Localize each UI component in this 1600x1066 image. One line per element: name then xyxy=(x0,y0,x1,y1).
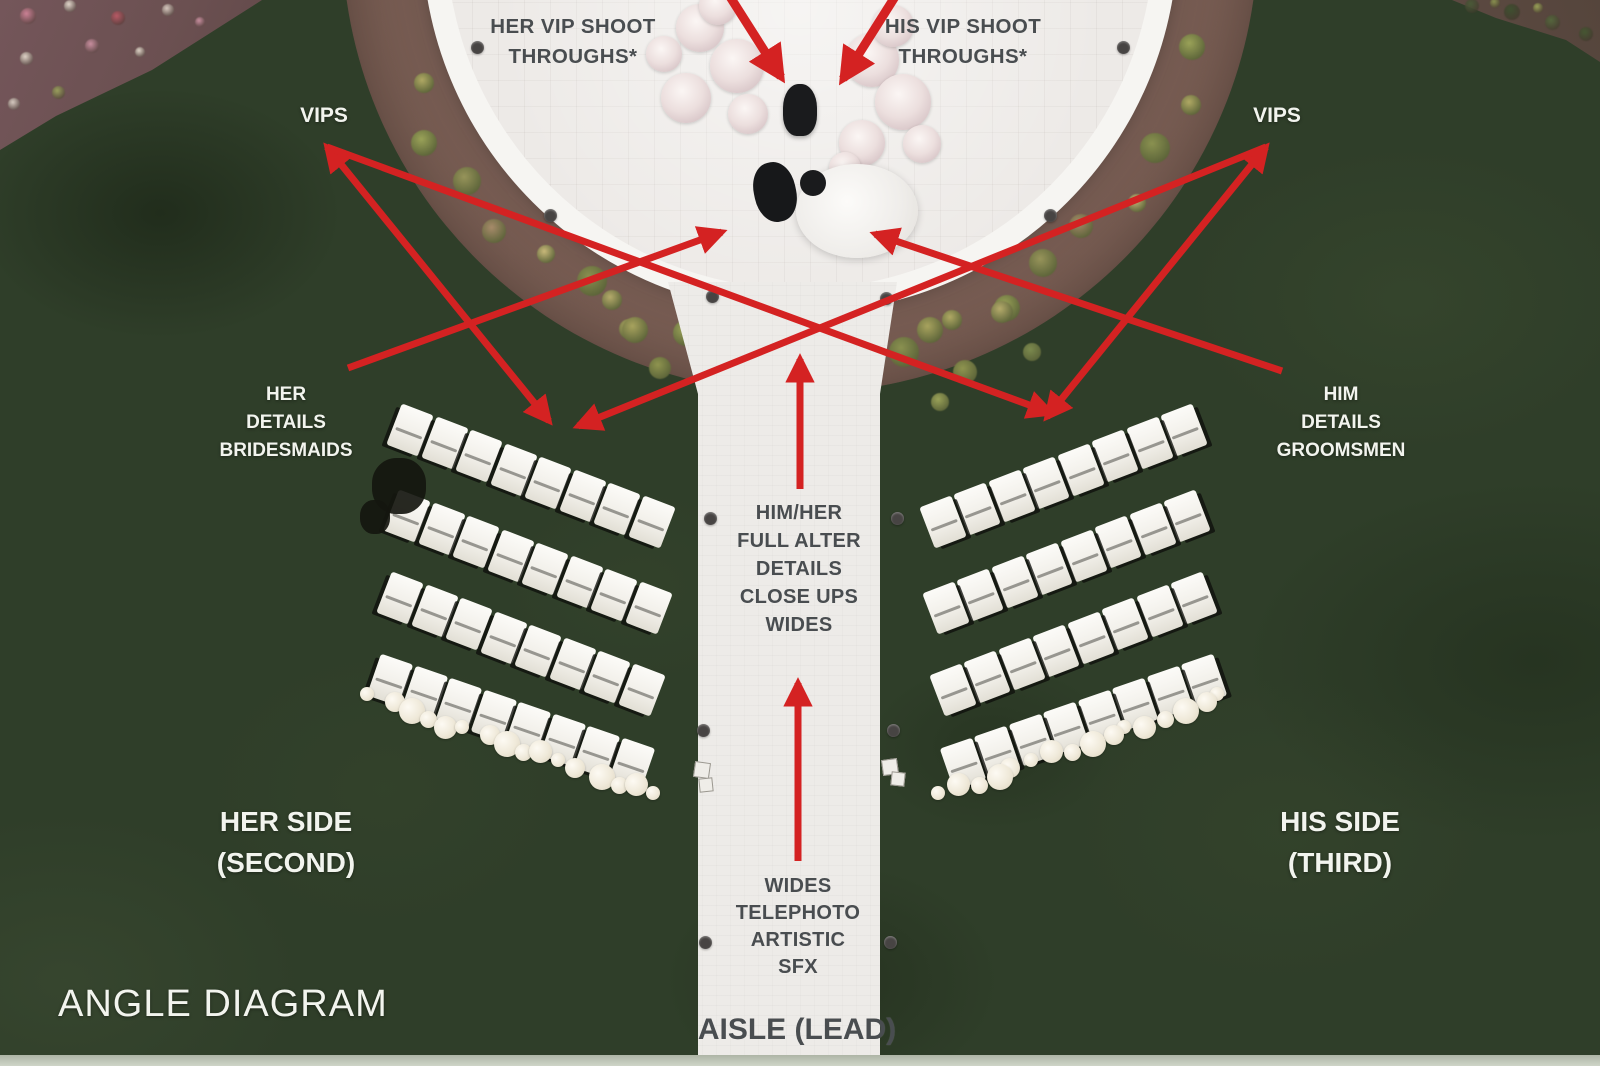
speaker-box xyxy=(890,771,905,786)
garden-shrub xyxy=(1069,214,1093,238)
garland-flowers xyxy=(987,764,1013,790)
garland-flowers xyxy=(931,786,945,800)
dark-object-on-lawn xyxy=(360,500,390,534)
garland-flowers xyxy=(455,720,469,734)
garland-flowers xyxy=(529,740,552,763)
garden-shrub xyxy=(1128,194,1146,212)
bed-flower xyxy=(20,52,33,65)
bed-flower xyxy=(135,47,145,57)
garland-flowers xyxy=(1133,716,1156,739)
garden-shrub xyxy=(482,219,506,243)
bed-flower xyxy=(1545,15,1560,30)
garden-shrub xyxy=(942,310,962,330)
pathway-light xyxy=(1044,209,1057,222)
garden-shrub xyxy=(931,393,949,411)
bride-head xyxy=(800,170,826,196)
altar-flower-arrangement xyxy=(661,73,711,123)
bed-flower xyxy=(20,8,36,24)
garden-shrub xyxy=(953,360,977,384)
bed-flower xyxy=(1533,3,1543,13)
speaker-box xyxy=(693,761,711,779)
garland-flowers xyxy=(434,716,457,739)
garland-flowers xyxy=(1040,740,1063,763)
bed-flower xyxy=(64,0,76,12)
garland-flowers xyxy=(625,773,648,796)
bed-flower xyxy=(195,17,205,27)
label-him-details-groomsmen: HIM DETAILS GROOMSMEN xyxy=(1201,381,1481,465)
garden-shrub xyxy=(917,317,943,343)
altar-flower-arrangement xyxy=(728,94,768,134)
garland-flowers xyxy=(646,786,660,800)
bed-flower xyxy=(1504,4,1520,20)
garland-flowers xyxy=(1197,692,1217,712)
pathway-light xyxy=(706,290,719,303)
bottom-edge-strip xyxy=(0,1055,1600,1066)
garland-flowers xyxy=(1064,744,1081,761)
label-aisle-lead: AISLE (LEAD) xyxy=(647,1013,947,1047)
garden-shrub xyxy=(1023,343,1041,361)
label-her-vip-shoot-throughs: HER VIP SHOOT THROUGHS* xyxy=(433,12,713,72)
garland-flowers xyxy=(1104,725,1124,745)
garden-shrub xyxy=(1140,133,1170,163)
label-her-side-second: HER SIDE (SECOND) xyxy=(116,801,456,883)
garland-flowers xyxy=(1173,698,1199,724)
pathway-light xyxy=(887,724,900,737)
bed-flower xyxy=(52,86,65,99)
label-his-vip-shoot-throughs: HIS VIP SHOOT THROUGHS* xyxy=(823,12,1103,72)
angle-diagram-canvas: HER VIP SHOOT THROUGHS* HIS VIP SHOOT TH… xyxy=(0,0,1600,1066)
label-far-shot-list: WIDES TELEPHOTO ARTISTIC SFX xyxy=(678,873,918,981)
garland-flowers xyxy=(1024,753,1038,767)
garland-flowers xyxy=(565,758,585,778)
altar-flower-arrangement xyxy=(710,39,764,93)
label-vips-left: VIPS xyxy=(244,105,404,127)
flower-bed-top-left xyxy=(0,0,272,152)
diagram-title: ANGLE DIAGRAM xyxy=(58,984,478,1024)
garland-flowers xyxy=(971,777,988,794)
officiant-figure xyxy=(783,84,817,136)
garden-shrub xyxy=(649,357,671,379)
pathway-light xyxy=(544,209,557,222)
altar-flower-arrangement xyxy=(875,74,931,130)
label-altar-shot-list: HIM/HER FULL ALTER DETAILS CLOSE UPS WID… xyxy=(679,499,919,639)
bed-flower xyxy=(1465,0,1479,13)
bed-flower xyxy=(8,98,20,110)
garden-shrub xyxy=(602,290,622,310)
garland-flowers xyxy=(1080,731,1106,757)
altar-flower-arrangement xyxy=(903,125,941,163)
label-vips-right: VIPS xyxy=(1197,105,1357,127)
speaker-box xyxy=(698,777,713,792)
garden-shrub xyxy=(577,266,607,296)
bed-flower xyxy=(1579,27,1593,41)
garden-shrub xyxy=(622,317,648,343)
bed-flower xyxy=(162,4,174,16)
garland-flowers xyxy=(360,687,374,701)
garland-flowers xyxy=(947,773,970,796)
bed-flower xyxy=(111,11,125,25)
garden-shrub xyxy=(1029,249,1057,277)
garland-flowers xyxy=(1157,711,1174,728)
pathway-light xyxy=(1117,41,1130,54)
pathway-light xyxy=(697,724,710,737)
pathway-light xyxy=(880,292,893,305)
garland-flowers xyxy=(551,753,565,767)
label-her-details-bridesmaids: HER DETAILS BRIDESMAIDS xyxy=(146,381,426,465)
garden-shrub xyxy=(991,301,1013,323)
label-his-side-third: HIS SIDE (THIRD) xyxy=(1170,801,1510,883)
bed-flower xyxy=(85,39,99,53)
